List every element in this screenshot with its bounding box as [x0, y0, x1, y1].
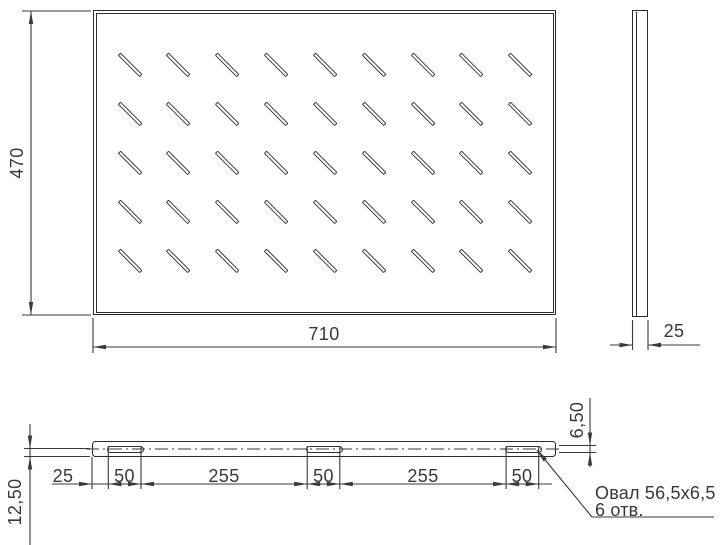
engineering-drawing: 470 710 25 25 50 255 50 255 50 12,50 6,5… [0, 0, 728, 545]
dim-slot-height-label: 6,50 [568, 402, 586, 439]
dim-width-label: 710 [308, 325, 339, 343]
dim-height-label: 470 [8, 147, 26, 178]
dim-chain-label-0: 25 [53, 467, 74, 485]
dim-chain-label-3: 50 [313, 467, 334, 485]
dim-depth-label: 25 [664, 322, 685, 340]
dim-chain-label-5: 50 [512, 467, 533, 485]
dim-chain-label-2: 255 [208, 467, 239, 485]
oval-slot-callout: Овал 56,5x6,5 6 отв. [595, 485, 716, 518]
oval-slot [505, 446, 542, 453]
oval-slot [107, 446, 144, 453]
oval-slot-group [0, 0, 728, 545]
callout-line-2: 6 отв. [595, 502, 716, 519]
dim-chain-label-1: 50 [114, 467, 135, 485]
dim-chain-label-4: 255 [407, 467, 438, 485]
dim-lip-height-label: 12,50 [6, 478, 24, 525]
oval-slot [306, 446, 343, 453]
